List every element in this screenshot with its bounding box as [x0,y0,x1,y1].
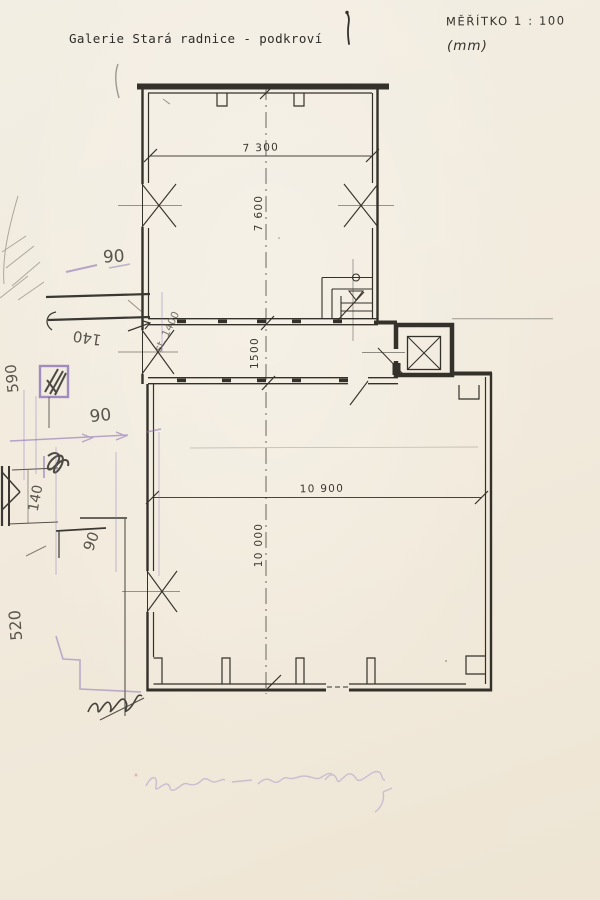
illegible-handwritten-note [146,772,392,812]
lower-room [122,237,492,691]
pencil-number: 90 [89,405,113,427]
pilaster [222,658,230,684]
dimension-labels: 7 300 7 600 1500 10 900 10 000 [242,141,344,567]
pilaster [296,658,304,684]
illegible-scribble [88,695,142,712]
dim-10900: 10 900 [300,483,345,496]
pencil-number: 140 [26,484,47,513]
floor-plan-drawing: 7 300 7 600 1500 10 900 10 000 [0,0,600,900]
wall-notch [217,93,227,106]
scanned-drawing-page: Galerie Stará radnice - podkroví MĚŘÍTKO… [0,0,600,900]
floor-plan [118,11,553,694]
door-swing [378,348,403,374]
pencil-wall-sketch [46,294,150,331]
pencil-sketch-layer [0,64,170,720]
wall-notch [294,93,304,106]
dim-7600: 7 600 [253,195,265,232]
staircase [322,259,372,341]
dim-1500: 1500 [249,337,261,369]
dim-10000: 10 000 [253,523,265,568]
pencil-number: 140 [72,327,103,349]
pencil-note: st. 1400 [152,310,182,354]
pencil-number: 520 [5,609,26,641]
elevator-shaft [362,319,553,375]
hatched-square [40,366,68,428]
pencil-number: 90 [102,246,125,267]
door-swing [350,381,368,405]
purple-arrow [10,429,161,442]
purple-pen-layer [10,264,392,812]
corner-notch [459,385,479,399]
dim-7300: 7 300 [242,141,279,154]
pilaster [367,658,375,684]
pencil-number: 590 [2,363,23,393]
pencil-number: 90 [80,529,103,553]
ink-mark [345,11,349,44]
